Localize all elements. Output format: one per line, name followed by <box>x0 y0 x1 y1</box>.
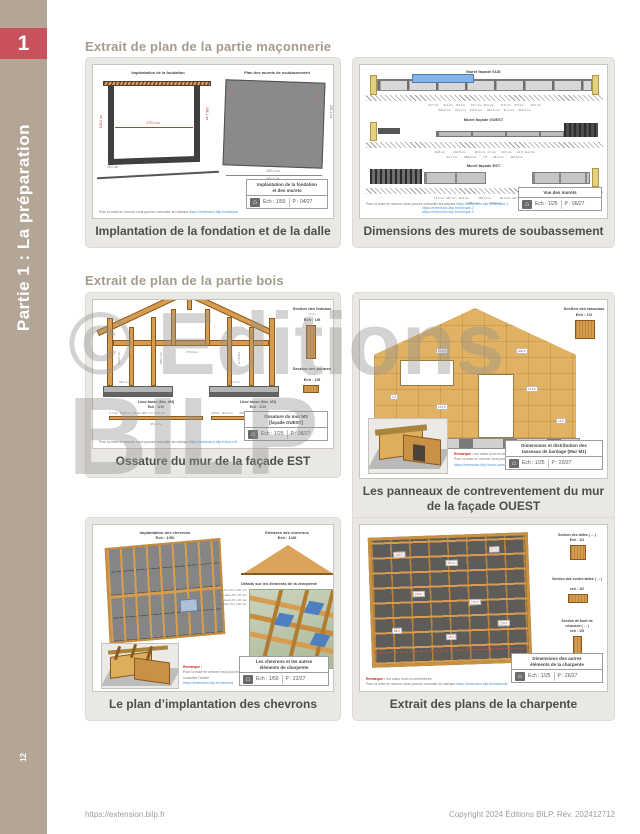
divider <box>282 675 283 684</box>
plan-contreventement: 174,0 200,6 7,5 174,5 12,5 174,5 Section… <box>359 299 608 479</box>
dimension-chip: 174,5 <box>526 386 538 392</box>
remark-block: Remarque : Pour la mise en oeuvre vous p… <box>183 665 247 686</box>
bilp-logo-icon: ⌂ <box>522 200 532 209</box>
dimension-text: 400,0 <box>229 88 233 96</box>
dimension-chip: 88,0 <box>392 628 402 635</box>
note-text: Pour la mise en oeuvre vous pouvez consu… <box>99 440 237 444</box>
section-subtitle: ( ... ) <box>289 372 334 376</box>
element-label-list: Chevron 45 x 220 mm Contre-latte 29 x 45… <box>189 588 247 607</box>
footer-copyright: Copyright 2024 Éditions BILP. Rév. 20241… <box>449 810 615 819</box>
sidebar-page-wrap: 12 <box>0 740 47 774</box>
door-opening <box>478 374 514 438</box>
title-block: Les chevrons et les autreséléments de ch… <box>239 656 329 686</box>
title-block-line: Dimensions et distribution des <box>508 443 600 449</box>
dimension-line <box>226 175 322 176</box>
title-block-line: tasseaux de bardage (Mur M1) <box>508 449 600 455</box>
heading-wood: Extrait de plan de la partie bois <box>85 273 284 288</box>
card-caption: Implantation de la fondation et de la da… <box>92 219 334 241</box>
stud <box>249 327 254 386</box>
muret-sud-drawing <box>370 77 599 93</box>
chapter-title: Partie 1 : La préparation <box>14 124 34 331</box>
card-caption: Le plan d’implantation des chevrons <box>92 692 334 714</box>
stud <box>151 317 156 386</box>
stud <box>171 309 176 346</box>
gable-triangle-drawing <box>241 545 334 575</box>
dimension-text: 175,0 cm <box>169 350 215 354</box>
scale-text: Ech : 1/10 <box>109 405 203 409</box>
scale-text: Ech : 1/5 <box>289 377 334 382</box>
note-link[interactable]: https://extension.bilp.fr/mur-m3 <box>189 440 237 444</box>
scale-text: Ech : 1/50 <box>256 676 279 682</box>
footing-right <box>209 386 279 397</box>
foundation-wall-bottom <box>108 156 196 165</box>
muret-bar <box>436 131 564 137</box>
dimension-text: 355,1 cm <box>233 169 313 173</box>
foundation-wall-left <box>108 86 114 162</box>
red-dashed-line <box>375 647 529 653</box>
title-block-line: Vue des murets <box>521 190 599 196</box>
bilp-logo-icon: ⌂ <box>248 430 258 439</box>
page-number: 12 <box>19 753 28 762</box>
card-caption: Ossature du mur de la façade EST <box>92 449 334 471</box>
title-block: Ossature du mur M3[façade OUEST] ⌂ Ech :… <box>244 411 328 441</box>
view-title: Muret façade SUD <box>360 69 607 74</box>
remark-text: les cotes sont en centimètres. <box>386 677 432 681</box>
note-link[interactable]: https://extension.bilp.fr/charpente <box>456 682 508 686</box>
plan-chevrons: Implantation des chevrons Ech : 1/50 Ent… <box>92 524 334 692</box>
slab-drawing: 400,0 265,5 <box>223 79 326 168</box>
title-block-line: et des murets <box>249 188 325 194</box>
dimension-text: 95,0 cm <box>109 422 203 426</box>
card-charpente: 130,5 254,0 57,5 234,0 175,2 88,0 45,2 1… <box>352 517 615 721</box>
card-ossature-est: 230,5 cm 198,1 cm 175,0 cm 128,8 cm 58,5… <box>85 292 341 478</box>
scale-text: Ech : 1/2 <box>558 312 608 317</box>
card-contreventement: 174,0 200,6 7,5 174,5 12,5 174,5 Section… <box>352 292 615 523</box>
scale-text: Ech : 1/10 <box>211 405 305 409</box>
plan-charpente: 130,5 254,0 57,5 234,0 175,2 88,0 45,2 1… <box>359 524 608 692</box>
scale-text: Ech : 1/25 <box>535 201 558 207</box>
page-ref-text: P : 20/27 <box>552 460 572 466</box>
lisse-bar <box>109 416 203 420</box>
ridge-post <box>187 299 192 310</box>
page-ref-text: P : 26/27 <box>558 673 578 679</box>
scale-text: Ech : 1/40 <box>239 535 334 540</box>
stud <box>129 327 134 386</box>
note-link[interactable]: https://extension.bilp.fr/chevrons <box>183 681 247 686</box>
plan-title: Implantation de la fondation <box>103 70 213 75</box>
note-label: Pour la mise en oeuvre vous pouvez consu… <box>183 670 247 681</box>
header-beam <box>113 340 269 346</box>
bilp-logo-icon: ⌂ <box>515 672 525 681</box>
dimension-chip: 200,6 <box>516 348 528 354</box>
post-yellow <box>592 168 599 187</box>
dimension-chip: 254,0 <box>446 560 458 567</box>
section-title: Section des contre-lattes ( ... ) <box>544 577 608 581</box>
card-fondation: Implantation de la fondation 370,0 cm 19… <box>85 57 341 248</box>
remark-label: Remarque : <box>366 677 385 681</box>
note-label: Pour la mise en oeuvre vous pouvez consu… <box>99 440 188 444</box>
dimension-chip: 130,5 <box>393 552 405 559</box>
stud <box>269 318 275 386</box>
section-title: Section des poutres <box>289 366 334 371</box>
dimension-text: 128,8 cm <box>237 352 241 364</box>
card-caption: Dimensions des murets de soubassement <box>359 219 608 241</box>
dimension-text: 265,5 <box>317 91 321 99</box>
dimension-chip: 234,0 <box>413 591 425 598</box>
dimension-chip: 57,5 <box>489 546 499 553</box>
details-title: Détails sur les éléments de la charpente <box>221 581 334 586</box>
muret-bar <box>532 172 590 184</box>
dimension-chip: 174,0 <box>436 348 448 354</box>
dimension-chip: 120,4 <box>498 620 510 627</box>
section-title: Section de bout de <box>546 619 608 623</box>
note-link[interactable]: https://extension.bilp.fr/rubrique-3 <box>422 210 474 214</box>
iso-view-thumbnail <box>101 643 179 689</box>
latte-section-shape <box>570 545 586 560</box>
bilp-logo-icon: ⌂ <box>250 198 260 207</box>
plan-murets: Muret façade SUD 13,7 cm 8,4 cm 8,8 cm 1… <box>359 64 608 219</box>
title-block-line: Implantation de la fondation <box>249 182 325 188</box>
dimension-text: 32,7 cm 188,0 cm 7,5 45,2 cm 110,0 cm <box>364 155 605 159</box>
view-title: Muret façade OUEST <box>360 117 607 122</box>
stud <box>205 309 210 346</box>
divider <box>289 198 290 207</box>
dimension-text: 13,8 cm 232,5 cm 16,3 cm 4,7 cm 10,5 cm … <box>364 150 605 154</box>
muret-est-drawing <box>370 171 599 187</box>
post-yellow <box>370 75 377 95</box>
dimension-text: 236,1 cm <box>329 105 333 118</box>
tasseau-section-shape <box>575 320 595 339</box>
scale-text: ech : 1/2 <box>544 587 608 591</box>
ground-line <box>97 171 219 179</box>
thumb-opening <box>413 444 425 462</box>
iso-view-thumbnail <box>368 418 448 474</box>
bilp-logo-icon: ⌂ <box>243 675 253 684</box>
dimension-text: 198,1 cm <box>205 107 209 120</box>
note-label: Pour la mise en oeuvre vous pouvez consu… <box>99 210 188 214</box>
divider <box>287 430 288 439</box>
plan-fondation: Implantation de la fondation 370,0 cm 19… <box>92 64 334 219</box>
note-label: Pour la mise en oeuvre vous pouvez consu… <box>366 682 455 686</box>
dimension-chip: 45,2 <box>446 634 456 641</box>
section-subtitle: ( 1:1 ) <box>289 312 334 316</box>
muret-bar <box>424 172 486 184</box>
scale-text: Ech : 1/50 <box>263 199 286 205</box>
roof-framing-plan: 130,5 254,0 57,5 234,0 175,2 88,0 45,2 1… <box>368 532 532 668</box>
card-chevrons: Implantation des chevrons Ech : 1/50 Ent… <box>85 517 341 721</box>
heading-masonry: Extrait de plan de la partie maçonnerie <box>85 39 331 54</box>
stud <box>107 318 113 386</box>
dimension-chip: 174,5 <box>436 404 448 410</box>
post-yellow <box>592 75 599 95</box>
contrelatte-section-shape <box>568 594 588 603</box>
card-murets: Muret façade SUD 13,7 cm 8,4 cm 8,8 cm 1… <box>352 57 615 248</box>
dimension-chip: 175,2 <box>469 599 481 606</box>
muret-block-dark <box>370 169 422 184</box>
dimension-line <box>115 127 193 128</box>
footer-url[interactable]: https://extension.bilp.fr <box>85 810 165 819</box>
dimension-text: 370,0 cm <box>123 121 183 125</box>
muret-block-dark <box>564 123 598 137</box>
title-block: Vue des murets ⌂ Ech : 1/25 P : 06/27 <box>518 187 602 211</box>
scale-text: Ech : 1/25 <box>522 460 545 466</box>
sidebar-title-wrap: Partie 1 : La préparation <box>0 78 47 378</box>
dimension-text: 13,7 cm 8,4 cm 8,8 cm 15,7 cm 13,5 cm 8,… <box>364 103 605 107</box>
chapter-number-badge: 1 <box>0 28 47 59</box>
page-ref-text: P : 22/27 <box>286 676 306 682</box>
document-page: 1 Partie 1 : La préparation 12 Extrait d… <box>0 0 640 834</box>
dimension-text: 198,1 cm <box>99 115 103 128</box>
footing-left <box>103 386 173 397</box>
title-block-line: [façade OUEST] <box>247 420 325 426</box>
divider <box>554 672 555 681</box>
lisse-title: Lisse basse (Mur_M3) <box>109 400 203 404</box>
note-text: Pour la mise en oeuvre vous pouvez consu… <box>99 210 238 214</box>
title-block-line: éléments de la charpente <box>514 662 600 668</box>
stud <box>227 317 232 386</box>
plan-ossature: 230,5 cm 198,1 cm 175,0 cm 128,8 cm 58,5… <box>92 299 334 449</box>
dimension-text: 15,0 cm <box>107 165 118 169</box>
scale-text: Ech : 1/25 <box>528 673 551 679</box>
note-link[interactable]: https://extension.bilp.fr/rubrique <box>189 210 238 214</box>
dimension-chip: 12,5 <box>556 418 566 424</box>
lisse-title: Lisse basse (Mur_M3) <box>211 400 305 404</box>
remark-label: Remarque : <box>183 665 202 669</box>
gable-base-line <box>241 573 334 575</box>
title-block: Dimensions et distribution destasseaux d… <box>505 440 603 470</box>
foundation-wall-right <box>194 86 200 162</box>
dimension-text: 322,0 cm 31,7 cm 313,0 cm 312,5 cm 31,7 … <box>364 108 605 112</box>
section-title: Section des linteaux <box>289 306 334 311</box>
ground-hatch <box>366 142 603 148</box>
muret-segment <box>378 128 400 134</box>
page-ref-text: P : 04/27 <box>293 199 313 205</box>
view-title: Muret façade EST <box>360 163 607 168</box>
scale-text: Ech : 1/25 <box>261 431 284 437</box>
remark-label: Remarque : <box>454 452 473 456</box>
muret-bar <box>377 79 592 91</box>
ground-hatch <box>366 95 603 101</box>
dimension-text: 58,5 cm <box>119 380 130 384</box>
post-yellow <box>370 122 377 141</box>
page-ref-text: P : 08/27 <box>291 431 311 437</box>
muret-ouest-drawing <box>370 125 599 141</box>
title-block: Implantation de la fondationet des muret… <box>246 179 328 209</box>
bilp-logo-icon: ⌂ <box>509 459 519 468</box>
title-block: Dimensions des autreséléments de la char… <box>511 653 603 683</box>
element-label: Planche 45 x 120 mm <box>189 602 247 607</box>
section-title: Section des lattes ( ... ) <box>546 533 608 537</box>
divider <box>561 200 562 209</box>
dimension-text: 230,5 cm <box>117 352 121 364</box>
plan-title: Plan des murets de soubassement <box>221 70 333 75</box>
dimension-chip: 7,5 <box>390 394 398 400</box>
dimension-text: 50,9 cm <box>229 380 240 384</box>
scale-text: Ech : 1/2 <box>546 538 608 542</box>
window-opening <box>400 360 454 386</box>
card-caption: Extrait des plans de la charpente <box>359 692 608 714</box>
section-title: Section des tasseaux <box>558 306 608 311</box>
gable-frame-drawing: 230,5 cm 198,1 cm 175,0 cm 128,8 cm 58,5… <box>99 304 283 396</box>
scale-text: ech : 1/5 <box>546 629 608 633</box>
muret-highlight-blue <box>412 74 474 83</box>
poutre-section-shape <box>303 385 319 393</box>
dimension-text: 4,5/10 35,0 cm 362,0 <box>211 411 247 415</box>
scale-text: Ech : 1/5 <box>289 317 334 322</box>
dimension-text: 198,1 cm <box>159 352 163 364</box>
divider <box>548 459 549 468</box>
chapter-sidebar: 1 Partie 1 : La préparation 12 <box>0 0 47 834</box>
dimension-text: 4,7 cm 35,8 cm 4,5 cm 28,7 cm 54,0 cm <box>109 411 165 415</box>
skylight-3d <box>310 633 331 648</box>
card-caption: Les panneaux de contreventement du mur d… <box>359 479 608 516</box>
section-title: rehausse ( ... ) <box>546 624 608 628</box>
page-ref-text: P : 06/27 <box>565 201 585 207</box>
title-block-line: éléments de charpente <box>242 665 326 671</box>
linteau-section-shape <box>306 325 316 359</box>
